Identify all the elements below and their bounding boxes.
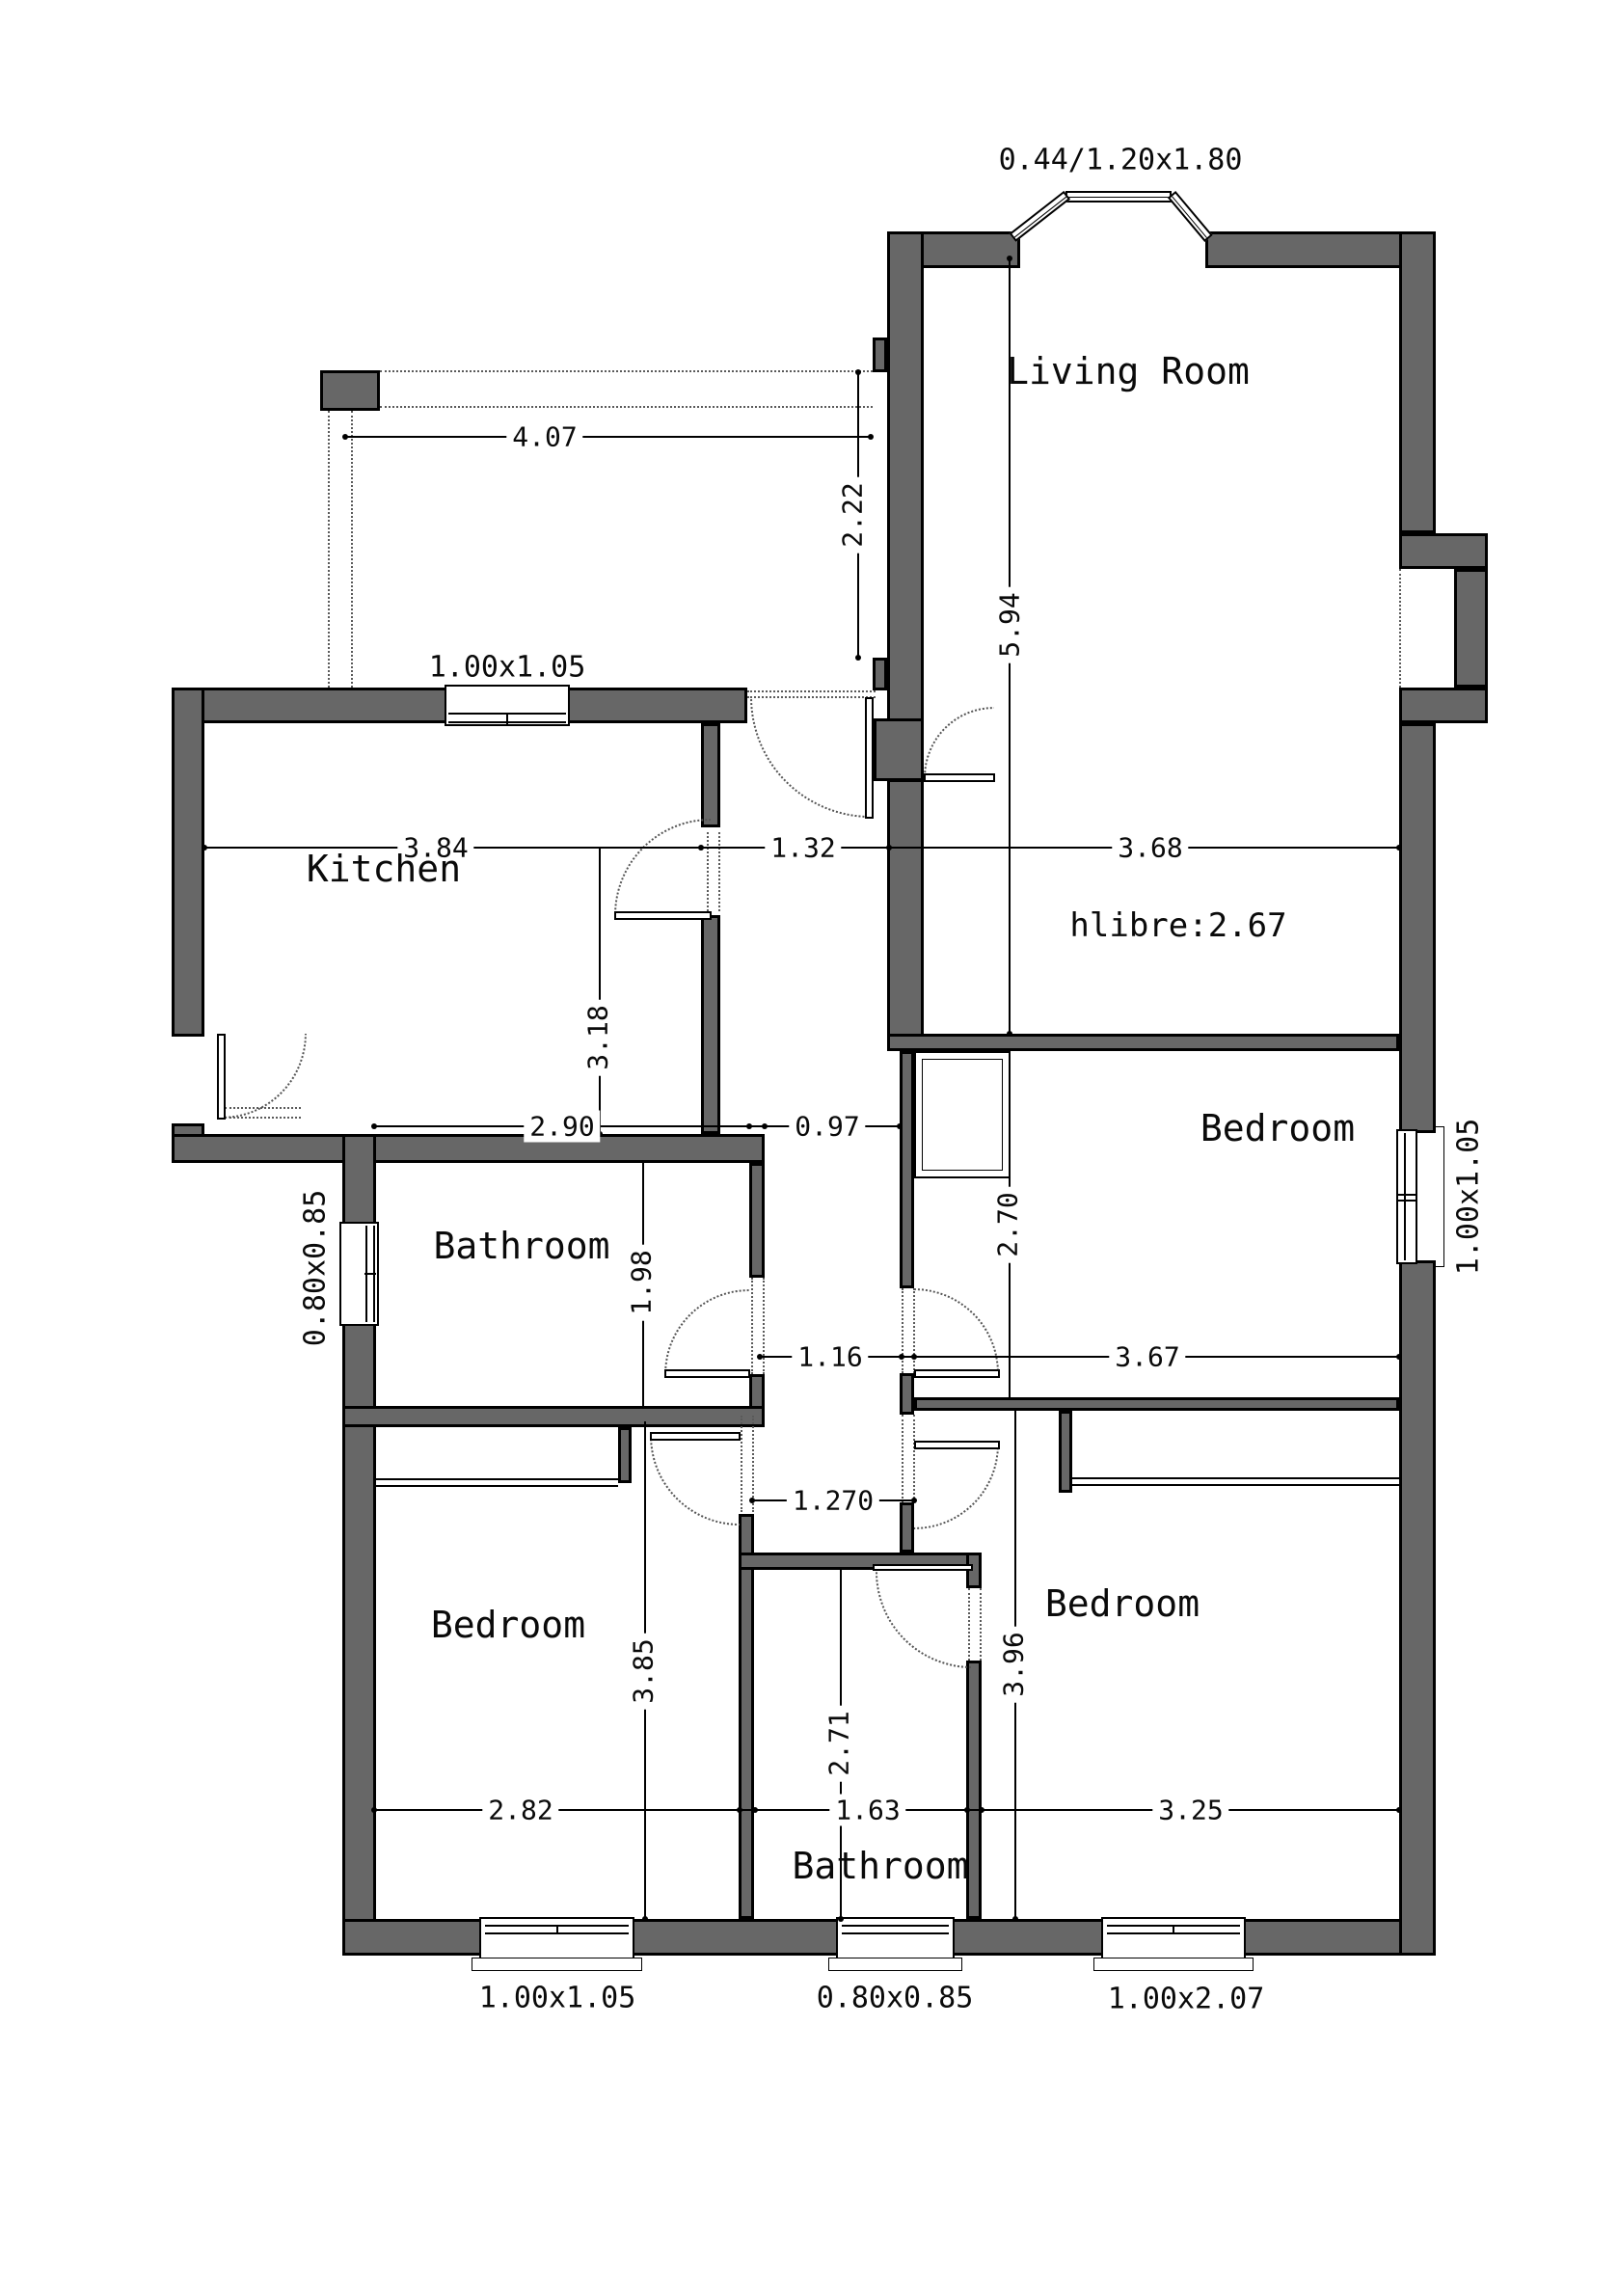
room-label-bathroom-bottom: Bathroom	[792, 1845, 968, 1887]
door-arc-kitchen-side	[222, 1034, 307, 1119]
wall	[874, 718, 924, 781]
window-label: 1.00x1.05	[479, 1982, 636, 2015]
dim-label: 1.98	[626, 1244, 658, 1320]
closet-front	[376, 1478, 618, 1487]
window-label: 0.80x0.85	[817, 1982, 974, 2015]
dotted-guide	[380, 370, 873, 372]
glazing-line	[1067, 197, 1170, 198]
door-arc	[222, 1034, 307, 1119]
dim-label: 3.85	[628, 1633, 660, 1709]
door-arc-kitchen	[614, 819, 711, 915]
dim-tick	[642, 1916, 648, 1922]
door-arc-bathroom-bottom	[876, 1572, 972, 1668]
dim-tick	[911, 1498, 917, 1503]
wall-bay	[1399, 533, 1488, 569]
door-leaf-kitchen	[614, 911, 712, 920]
wall	[627, 1919, 844, 1956]
door-opening-guide	[763, 1278, 765, 1374]
dim-tick	[371, 1123, 377, 1129]
dim-tick	[979, 1807, 984, 1813]
dim-tick	[1396, 845, 1402, 851]
door-leaf-entry	[865, 697, 874, 819]
window-sill	[828, 1958, 962, 1971]
wall	[701, 915, 720, 1134]
wall	[900, 1373, 914, 1415]
glazing-line	[1404, 1133, 1406, 1260]
window-label: 1.00x1.05	[1452, 1119, 1486, 1276]
room-label-bathroom-top: Bathroom	[433, 1225, 609, 1267]
bay-window-side	[1010, 191, 1071, 242]
room-label-bedroom-bottom-right: Bedroom	[1045, 1582, 1200, 1625]
glazing-line	[1173, 196, 1208, 238]
dim-label: 5.94	[994, 586, 1026, 662]
dim-label: 2.90	[524, 1111, 600, 1143]
wall	[342, 1919, 487, 1956]
dim-tick	[202, 845, 207, 851]
wall	[947, 1919, 1109, 1956]
window-label: 0.80x0.85	[299, 1190, 333, 1347]
dim-label: 2.71	[823, 1705, 855, 1781]
door-arc-bedroom-bottom-right	[914, 1445, 999, 1529]
dotted-guide	[380, 406, 873, 408]
dim-tick	[752, 1807, 758, 1813]
wall	[172, 1134, 765, 1163]
door-leaf-bedroom-bottom-left	[650, 1432, 741, 1441]
bay-window	[1065, 191, 1172, 203]
door-opening-guide	[718, 832, 720, 911]
door-arc	[876, 1572, 972, 1668]
door-opening-guide	[902, 1288, 903, 1373]
door-arc	[924, 707, 994, 777]
porch-column	[320, 370, 380, 411]
door-arc-bedroom-bottom-left	[650, 1436, 740, 1526]
window-sill	[1093, 1958, 1254, 1971]
wall	[887, 1034, 1399, 1051]
glazing-line	[506, 713, 508, 724]
wall	[172, 688, 204, 1037]
door-arc-living-room	[924, 707, 994, 777]
door-opening-guide	[980, 1588, 982, 1661]
dim-tick	[899, 1354, 904, 1360]
window-extent-bracket	[1436, 1126, 1444, 1127]
dim-tick	[746, 1123, 752, 1129]
wall-closet-stub	[1059, 1411, 1072, 1493]
closet-inner	[922, 1059, 1003, 1171]
wall	[914, 1397, 1399, 1411]
wall	[1399, 231, 1436, 533]
floor-plan-canvas: 4.07 3.84 1.32 3.68 2.90 0.97 1.16 3.67 …	[0, 0, 1618, 2296]
window-right	[1396, 1129, 1417, 1264]
wall	[900, 1051, 914, 1288]
dotted-guide	[1399, 569, 1401, 688]
window-bottom-middle	[836, 1917, 955, 1959]
dim-label: 3.68	[1112, 832, 1188, 864]
door-arc-bedroom-right	[914, 1288, 999, 1373]
dim-label: 2.22	[837, 476, 869, 553]
dim-label: 0.97	[789, 1111, 865, 1143]
glazing-line	[364, 1273, 376, 1275]
dim-tick	[1396, 1807, 1402, 1813]
window-label: 1.00x1.05	[429, 651, 586, 685]
dim-tick	[737, 1807, 742, 1813]
dotted-guide	[351, 411, 353, 688]
window-bottom-left	[479, 1917, 634, 1959]
wall	[342, 1406, 765, 1427]
door-leaf-bathroom-bottom	[873, 1564, 973, 1571]
door-leaf-bedroom-bottom-right	[914, 1441, 1000, 1449]
wall	[887, 231, 924, 723]
window-label: 1.00x2.07	[1108, 1983, 1265, 2016]
dim-label: 1.16	[792, 1341, 868, 1373]
dim-tick	[1007, 1031, 1012, 1037]
dim-tick	[855, 369, 861, 375]
dim-tick	[1396, 1354, 1402, 1360]
wall-pilaster	[873, 658, 887, 690]
glazing-line	[1014, 196, 1066, 237]
door-arc	[664, 1289, 749, 1374]
door-arc	[914, 1445, 999, 1529]
dim-tick	[762, 1123, 768, 1129]
wall	[701, 723, 720, 827]
dim-tick	[757, 1354, 763, 1360]
door-opening-guide	[751, 1278, 753, 1374]
wall	[900, 1502, 914, 1553]
bay-window-side	[1168, 191, 1213, 242]
dim-label: 3.96	[998, 1626, 1030, 1702]
glazing-line	[1398, 1194, 1416, 1196]
wall	[887, 779, 924, 1038]
dim-label: 2.82	[482, 1795, 558, 1826]
door-leaf-living-room	[924, 773, 995, 782]
dim-tick	[868, 434, 874, 440]
dim-tick	[855, 655, 861, 661]
dim-label: 2.70	[992, 1186, 1024, 1262]
dim-tick	[749, 1498, 755, 1503]
dim-label: 4.07	[506, 421, 582, 453]
ceiling-height-note: hlibre:2.67	[1069, 906, 1286, 945]
closet-front	[1072, 1477, 1399, 1486]
bay-window-label: 0.44/1.20x1.80	[999, 144, 1243, 177]
door-arc-entry	[750, 697, 871, 818]
glazing-line	[1398, 1200, 1416, 1202]
wall	[566, 688, 747, 723]
dim-tick	[838, 1916, 844, 1922]
door-arc	[614, 819, 711, 915]
dim-label: 1.32	[765, 832, 841, 864]
dim-label: 3.18	[582, 999, 614, 1075]
dim-tick	[886, 845, 892, 851]
room-label-kitchen: Kitchen	[307, 848, 461, 890]
dim-tick	[342, 434, 348, 440]
window-bottom-right	[1101, 1917, 1246, 1959]
window-sill	[472, 1958, 642, 1971]
wall-bay	[1454, 569, 1488, 688]
wall-closet-stub	[618, 1427, 632, 1483]
wall	[1399, 723, 1436, 1133]
dim-tick	[1012, 1916, 1018, 1922]
door-opening-guide	[902, 1415, 903, 1502]
wall	[342, 1134, 376, 1226]
room-label-living-room: Living Room	[1007, 350, 1250, 392]
dim-line	[345, 436, 871, 438]
wall	[1399, 1260, 1436, 1956]
window-extent-bracket	[1443, 1126, 1444, 1267]
dim-tick	[911, 1354, 917, 1360]
dim-tick	[897, 1123, 903, 1129]
dim-line	[599, 848, 601, 1134]
door-opening-guide	[741, 1416, 742, 1512]
dim-label: 1.63	[829, 1795, 905, 1826]
door-arc	[750, 697, 871, 818]
glazing-line	[556, 1925, 558, 1934]
dotted-guide	[328, 411, 330, 688]
door-arc	[914, 1288, 999, 1373]
glazing-line	[842, 1925, 949, 1927]
dotted-guide	[747, 690, 876, 692]
dim-label: 3.25	[1152, 1795, 1228, 1826]
dim-tick	[964, 1807, 970, 1813]
glazing-line	[1173, 1925, 1174, 1934]
dim-tick	[1007, 256, 1012, 261]
door-leaf-bedroom-right	[914, 1369, 1000, 1378]
door-leaf-kitchen-side	[217, 1034, 226, 1120]
door-leaf-bathroom-top	[664, 1369, 750, 1378]
door-arc	[650, 1436, 740, 1526]
dim-label: 3.67	[1109, 1341, 1185, 1373]
wall-pilaster	[873, 338, 887, 372]
door-arc-bathroom-top	[664, 1289, 749, 1374]
room-label-bedroom-right: Bedroom	[1200, 1107, 1355, 1149]
wall	[739, 1514, 754, 1919]
window-extent-bracket	[1436, 1266, 1444, 1267]
dim-tick	[698, 845, 704, 851]
wall-bay	[1399, 688, 1488, 723]
wall	[172, 688, 448, 723]
glazing-line	[842, 1932, 949, 1934]
dim-label: 1.270	[787, 1485, 879, 1517]
room-label-bedroom-bottom-left: Bedroom	[431, 1604, 585, 1646]
wall	[749, 1163, 765, 1278]
dim-tick	[371, 1807, 377, 1813]
